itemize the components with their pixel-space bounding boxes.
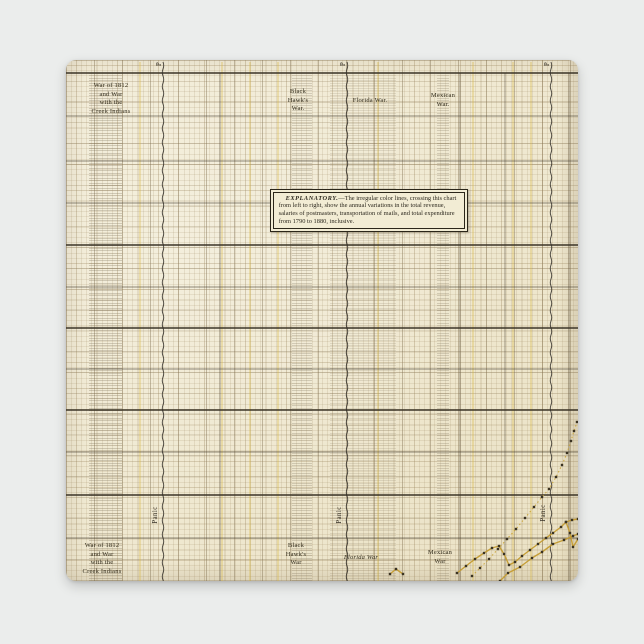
label-war-1812-bottom: War of 1812 and War with the Creek India… bbox=[67, 542, 137, 576]
data-point-dot bbox=[573, 430, 575, 432]
data-point-dot bbox=[577, 538, 578, 540]
explanatory-note-box: EXPLANATORY.—The irregular color lines, … bbox=[270, 189, 468, 232]
data-point-dot bbox=[570, 440, 572, 442]
data-point-dot bbox=[537, 543, 539, 545]
data-point-dot bbox=[548, 488, 550, 490]
label-mexican-war-top: Mexican War. bbox=[418, 92, 468, 109]
data-point-dot bbox=[552, 543, 554, 545]
label-panic-bottom-1: Panic bbox=[151, 497, 161, 533]
label-florida-war-top: Florida War. bbox=[335, 97, 405, 106]
data-point-dot bbox=[566, 452, 568, 454]
panic-wavy-line bbox=[162, 62, 163, 581]
label-black-hawks-war-top: Black Hawk's War. bbox=[273, 88, 323, 114]
chart-lines-overlay bbox=[66, 60, 578, 581]
label-panic-top-1: P bbox=[155, 60, 165, 82]
expenditure-dotted-line bbox=[472, 422, 577, 576]
data-point-dot bbox=[565, 521, 567, 523]
data-point-dot bbox=[507, 572, 509, 574]
label-panic-bottom-2: Panic bbox=[335, 497, 345, 533]
label-panic-top-2: P bbox=[339, 60, 349, 82]
data-point-dot bbox=[395, 568, 397, 570]
data-point-dot bbox=[503, 553, 505, 555]
data-point-dot bbox=[488, 558, 490, 560]
data-point-dot bbox=[571, 519, 573, 521]
data-point-dot bbox=[521, 555, 523, 557]
label-black-hawks-war-bottom: Black Hawk's War bbox=[271, 542, 321, 568]
data-point-dot bbox=[456, 572, 458, 574]
label-florida-war-bottom: Florida War bbox=[321, 554, 401, 563]
data-point-dot bbox=[541, 551, 543, 553]
data-point-dot bbox=[555, 476, 557, 478]
data-point-dot bbox=[576, 421, 578, 423]
data-point-dot bbox=[561, 464, 563, 466]
data-point-dot bbox=[389, 573, 391, 575]
data-point-dot bbox=[474, 558, 476, 560]
label-war-1812-top: War of 1812 and War with the Creek India… bbox=[76, 82, 146, 116]
data-point-dot bbox=[577, 533, 578, 535]
explanatory-note-text: EXPLANATORY.—The irregular color lines, … bbox=[273, 192, 466, 230]
data-point-dot bbox=[402, 573, 404, 575]
data-point-dot bbox=[531, 557, 533, 559]
data-point-dot bbox=[529, 549, 531, 551]
gold-line-lower bbox=[500, 534, 578, 581]
data-point-dot bbox=[524, 517, 526, 519]
panic-wavy-line bbox=[346, 62, 347, 581]
data-point-dot bbox=[572, 546, 574, 548]
data-point-dot bbox=[552, 532, 554, 534]
label-panic-top-3: P bbox=[543, 60, 553, 82]
panic-wavy-line bbox=[550, 62, 551, 581]
data-point-dot bbox=[483, 552, 485, 554]
data-point-dot bbox=[514, 561, 516, 563]
label-mexican-war-bottom: Mexican War bbox=[415, 549, 465, 566]
data-point-dot bbox=[499, 580, 501, 581]
data-point-dot bbox=[471, 575, 473, 577]
data-point-dot bbox=[545, 537, 547, 539]
data-point-dot bbox=[519, 566, 521, 568]
data-point-dot bbox=[563, 539, 565, 541]
data-point-dot bbox=[479, 567, 481, 569]
data-point-dot bbox=[491, 547, 493, 549]
data-point-dot bbox=[515, 528, 517, 530]
data-point-dot bbox=[498, 545, 500, 547]
data-point-dot bbox=[497, 548, 499, 550]
data-point-dot bbox=[577, 518, 578, 520]
label-panic-bottom-3: Panic bbox=[539, 495, 549, 531]
data-point-dot bbox=[506, 538, 508, 540]
data-point-dot bbox=[560, 526, 562, 528]
data-point-dot bbox=[508, 564, 510, 566]
data-point-dot bbox=[465, 565, 467, 567]
product-backdrop: War of 1812 and War with the Creek India… bbox=[0, 0, 644, 644]
data-point-dot bbox=[569, 532, 571, 534]
data-point-dot bbox=[572, 535, 574, 537]
data-point-dot bbox=[533, 506, 535, 508]
chart-paper: War of 1812 and War with the Creek India… bbox=[66, 60, 578, 581]
explanatory-heading: EXPLANATORY. bbox=[286, 195, 339, 202]
